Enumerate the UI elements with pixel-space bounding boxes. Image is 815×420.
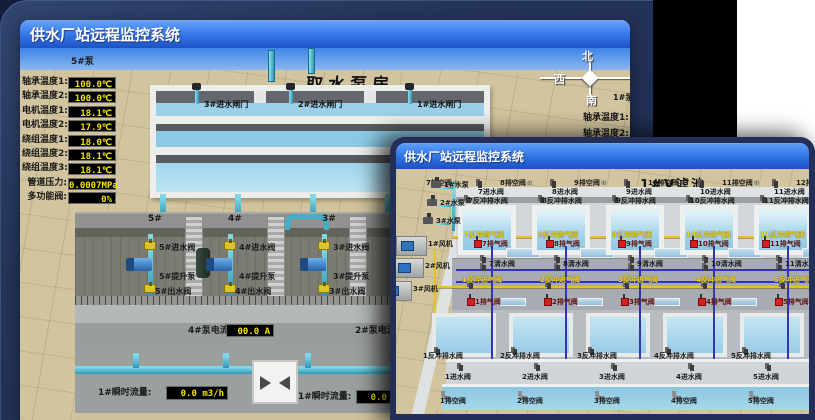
valve-glyph-icon [630,257,634,263]
exhaust-valve-4[interactable]: 11排气阀 [770,241,801,248]
inlet-valve-4[interactable]: 5进水阀 [753,374,779,381]
backwash-drain-valve-1[interactable]: 8反冲排水阀 [542,198,582,205]
gallery-tank-4 [802,248,809,258]
pump-monitor-title: 5#泵 [71,58,94,67]
inlet-valve-0[interactable]: 1进水阀 [445,374,471,381]
floor-stub-1 [223,353,229,368]
air-inlet-valve-2[interactable]: 3反冲进气阀 [618,277,658,284]
valve-glyph-icon [704,257,708,263]
monitor-label-6: 绕组温度3: [22,164,67,173]
drain-valve-3[interactable]: 4排空阀 [671,398,697,405]
air-pipe [430,286,809,288]
window-v-filter[interactable]: 供水厂站远程监控系统 1#V滤池 [390,137,815,420]
lift-pump-label-0[interactable]: 5#提升泵 [159,273,195,281]
monitor-value-0: 100.0℃ [68,77,116,89]
valve-glyph-icon [482,257,486,263]
inlet-valve-0[interactable]: 7进水阀 [478,189,504,196]
filter-cell-lower-0 [432,313,496,357]
valve-glyph-icon [767,365,771,371]
flow-label-0: 1#瞬时流量: [98,389,151,398]
inlet-valve-2[interactable]: 9进水阀 [626,189,652,196]
exhaust-valve-3[interactable]: 10排气阀 [698,241,729,248]
gallery-tank-low-2 [654,298,680,306]
air-inlet-valve-3[interactable]: 4反冲进气阀 [696,277,736,284]
monitor-label-1: 轴承温度2: [22,92,67,101]
air-inlet-valve-4[interactable]: 5反冲进气阀 [774,277,809,284]
intake-gate-1[interactable]: 2#进水闸门 [298,101,342,109]
monitor-value-5: 18.1℃ [68,149,116,161]
monitor-value-8: 0% [68,192,116,204]
blower-fan-1[interactable]: 2#风机 [425,263,450,270]
blower-fan-0[interactable]: 1#风机 [428,241,453,248]
back-window-title: 供水厂站远程监控系统 [20,21,630,49]
flow-label-1: 1#瞬时流量: [298,393,351,402]
monitor-label-2: 电机温度1: [22,107,67,116]
flow-value-0: 0.0 m3/h [166,386,228,400]
lift-pump-icon-2[interactable] [300,258,326,271]
valve-glyph-icon [556,257,560,263]
intake-gate-0[interactable]: 3#进水闸门 [204,101,248,109]
drain-valve-4[interactable]: 5排空阀 [748,398,774,405]
exhaust-valve-1[interactable]: 8排气阀 [554,241,580,248]
bay-label-2: 3# [322,215,336,224]
right-monitor-label-0: 轴承温度1: [583,114,629,123]
pipe-pillar [268,50,275,82]
drain-valve-3[interactable]: 10排空阀 [648,180,686,187]
valve-glyph-icon [482,265,486,271]
outlet-valve-label-1[interactable]: 4#出水阀 [235,288,271,296]
inlet-valve-icon-2[interactable] [318,241,330,250]
clean-water-valve-0[interactable]: 7清水阀 [489,261,515,268]
valve-glyph-icon [778,257,782,263]
floor-stub-0 [133,353,139,368]
lift-pump-icon-1[interactable] [206,258,232,271]
valve-glyph-icon [704,265,708,271]
monitor-label-5: 绕组温度2: [22,150,67,159]
inlet-valve-2[interactable]: 3进水阀 [599,374,625,381]
drain-valve-4[interactable]: 11排空阀 [722,180,760,187]
inlet-valve-label-1[interactable]: 4#进水阀 [239,244,275,252]
bay-label-1: 4# [228,215,242,224]
backwash-pump-2[interactable]: 3#水泵 [436,218,461,225]
clean-water-valve-2[interactable]: 9清水阀 [637,261,663,268]
exhaust-valve-0[interactable]: 1排气阀 [475,299,501,306]
clean-water-valve-1[interactable]: 8清水阀 [563,261,589,268]
intake-gate-2[interactable]: 1#进水闸门 [417,101,461,109]
outlet-valve-label-0[interactable]: 5#出水阀 [155,288,191,296]
clean-water-valve-4[interactable]: 11清水阀 [785,261,809,268]
inlet-valve-1[interactable]: 8进水阀 [552,189,578,196]
inlet-valve-1[interactable]: 2进水阀 [522,374,548,381]
inlet-valve-label-0[interactable]: 5#进水阀 [159,244,195,252]
monitor-label-4: 绕组温度1: [22,136,67,145]
exhaust-valve-1[interactable]: 2排气阀 [552,299,578,306]
bay-label-0: 5# [148,215,162,224]
outlet-valve-label-2[interactable]: 3#出水阀 [329,288,365,296]
gallery-tank-low-0 [500,298,526,306]
inlet-valve-icon-0[interactable] [144,241,156,250]
filter-cell-lower-4 [740,313,804,357]
exhaust-valve-2[interactable]: 9排气阀 [626,241,652,248]
front-window-title: 供水厂站远程监控系统 [396,144,809,170]
valve-glyph-icon [778,265,782,271]
inlet-valve-3[interactable]: 10进水阀 [700,189,731,196]
backwash-pump-1[interactable]: 2#水泵 [440,200,465,207]
lift-pump-label-2[interactable]: 3#提升泵 [333,273,369,281]
sky [20,48,630,70]
front-window-titlebar[interactable]: 供水厂站远程监控系统 [396,143,809,169]
right-monitor-title: 1#泵 [613,94,630,102]
backwash-drain-valve-0[interactable]: 7反冲排水阀 [468,198,508,205]
desktop: 供水厂站远程监控系统 取水泵房 5#泵 轴承温度1:100.0℃轴承温度2:10… [0,0,815,420]
monitor-value-2: 18.1℃ [68,106,116,118]
monitor-value-4: 18.0℃ [68,135,116,147]
monitor-value-6: 18.1℃ [68,163,116,175]
backwash-drain-valve-3[interactable]: 10反冲排水阀 [690,198,735,205]
drain-valve-2[interactable]: 3排空阀 [594,398,620,405]
monitor-value-7: 0.0007MPa [68,178,116,190]
exhaust-valve-4[interactable]: 5排气阀 [783,299,809,306]
backwash-drain-valve-1[interactable]: 2反冲排水阀 [500,353,540,360]
valve-glyph-icon [690,365,694,371]
inlet-valve-icon-1[interactable] [224,241,236,250]
monitor-value-3: 17.9℃ [68,120,116,132]
lift-pump-icon-0[interactable] [126,258,152,271]
monitor-label-8: 多功能阀: [22,193,67,202]
backwash-drain-valve-2[interactable]: 3反冲排水阀 [577,353,617,360]
inlet-valve-label-2[interactable]: 3#进水阀 [333,244,369,252]
compass-north: 北 [582,48,593,64]
inlet-valve-4[interactable]: 11进水阀 [774,189,805,196]
filter-cell-lower-1 [509,313,573,357]
lift-pump-label-1[interactable]: 4#提升泵 [239,273,275,281]
backwash-drain-valve-4[interactable]: 5反冲排水阀 [731,353,771,360]
filter-cell-lower-3 [663,313,727,357]
valve-glyph-icon [630,265,634,271]
drain-valve-0[interactable]: 1排空阀 [440,398,466,405]
exhaust-valve-3[interactable]: 4排气阀 [706,299,732,306]
monitor-label-0: 轴承温度1: [22,78,67,87]
blower-fan-2[interactable]: 3#风机 [413,286,438,293]
compass-south: 南 [586,92,597,108]
floor-stub-2 [305,353,311,368]
valve-cabinet-icon[interactable] [252,360,298,404]
valve-glyph-icon [556,265,560,271]
gallery-tank-low-3 [731,298,757,306]
exhaust-valve-2[interactable]: 3排气阀 [629,299,655,306]
v-filter-scene: 1#V滤池 [396,169,809,414]
back-window-titlebar[interactable]: 供水厂站远程监控系统 [20,20,630,48]
exhaust-valve-0[interactable]: 7排气阀 [482,241,508,248]
clean-water-valve-3[interactable]: 10清水阀 [711,261,742,268]
backwash-pump-0[interactable]: 1#水泵 [444,182,469,189]
valve-glyph-icon [459,365,463,371]
drain-valve-1[interactable]: 2排空阀 [517,398,543,405]
backwash-drain-valve-0[interactable]: 1反冲排水阀 [423,353,463,360]
air-inlet-valve-1[interactable]: 2反冲进气阀 [540,277,580,284]
air-inlet-valve-0[interactable]: 7反冲进气阀 [464,232,504,239]
drain-valve-2[interactable]: 9排空阀 [574,180,607,187]
drain-valve-5[interactable]: 12排空阀 [796,180,809,187]
backwash-drain-valve-2[interactable]: 9反冲排水阀 [616,198,656,205]
backwash-drain-valve-3[interactable]: 4反冲排水阀 [654,353,694,360]
gallery-tank-low-1 [577,298,603,306]
air-inlet-valve-2[interactable]: 9反冲进气阀 [612,232,652,239]
monitor-label-3: 电机温度2: [22,121,67,130]
valve-glyph-icon [536,365,540,371]
current-value-0: 00.0 A [226,324,274,337]
air-inlet-valve-1[interactable]: 8反冲进气阀 [538,232,578,239]
air-inlet-valve-4[interactable]: 11反冲进气阀 [760,232,805,239]
backwash-drain-valve-4[interactable]: 11反冲排水阀 [764,198,809,205]
inlet-valve-3[interactable]: 4进水阀 [676,374,702,381]
compass-west: 西 [554,71,565,87]
valve-glyph-icon [613,365,617,371]
drain-valve-1[interactable]: 8排空阀 [500,180,533,187]
monitor-value-1: 100.0℃ [68,91,116,103]
monitor-label-7: 管道压力: [22,179,67,188]
air-inlet-valve-0[interactable]: 1反冲进气阀 [462,277,502,284]
